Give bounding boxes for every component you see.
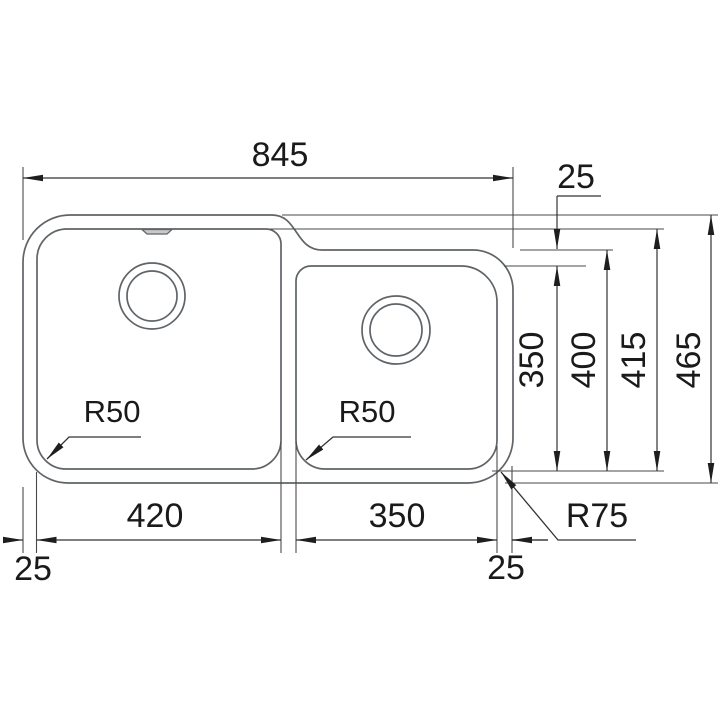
extension-lines [23, 167, 718, 553]
left-bowl-width-label: 420 [127, 497, 184, 535]
left-drain-outer-circle [119, 263, 185, 329]
drawing-svg: 845 25 350 400 415 465 R50 R50 420 350 R… [0, 0, 720, 720]
outer-sink-outline [23, 215, 513, 483]
left-drain-inner-circle [127, 271, 177, 321]
sink-outlines [23, 215, 513, 483]
overall-width-label: 845 [252, 136, 309, 174]
sink-dimension-drawing: 845 25 350 400 415 465 R50 R50 420 350 R… [0, 0, 720, 720]
outer-corner-radius-label: R75 [566, 497, 628, 535]
leader-left-bowl-radius [47, 437, 141, 459]
overflow-notch [142, 230, 172, 235]
overall-depth-label: 465 [670, 332, 708, 389]
right-outer-depth-label: 400 [565, 332, 603, 389]
dimension-lines [3, 178, 711, 540]
right-bowl-width-label: 350 [369, 497, 426, 535]
rim-bottom-left-label: 25 [14, 550, 52, 588]
rim-bottom-right-label: 25 [487, 549, 525, 587]
left-bowl-depth-label: 415 [615, 332, 653, 389]
rim-top-right-label: 25 [557, 158, 595, 196]
left-bowl-radius-label: R50 [84, 394, 141, 429]
leader-right-bowl-radius [306, 437, 411, 460]
dimension-labels: 845 25 350 400 415 465 R50 R50 420 350 R… [14, 136, 708, 588]
right-drain-outer-circle [362, 296, 430, 364]
right-bowl-depth-label: 350 [513, 332, 551, 389]
left-bowl-outline [37, 229, 281, 469]
right-drain-inner-circle [370, 304, 422, 356]
right-bowl-radius-label: R50 [339, 394, 396, 429]
